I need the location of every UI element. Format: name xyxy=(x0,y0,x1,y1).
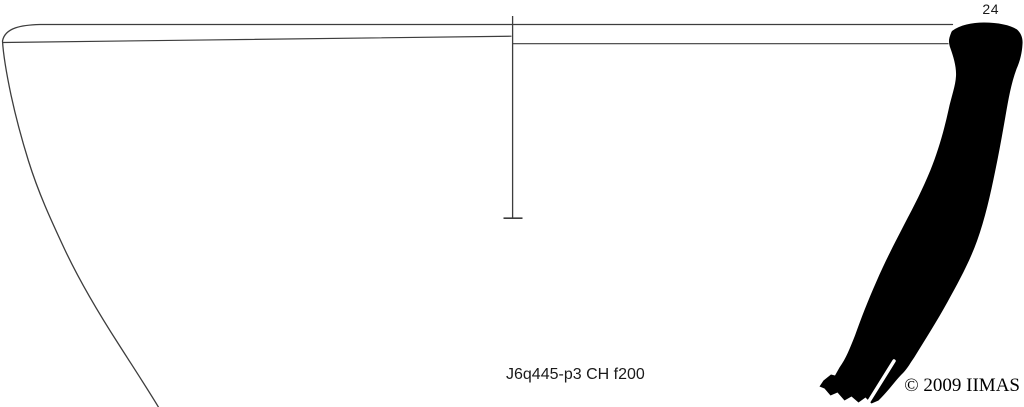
sherd-caption: J6q445-p3 CH f200 xyxy=(506,365,645,385)
interior-rim-line-left xyxy=(3,36,512,42)
plate-number: 24 xyxy=(982,0,999,18)
copyright-notice: © 2009 IIMAS xyxy=(904,374,1020,398)
pottery-plate-figure: 24 J6q445-p3 CH f200 © 2009 IIMAS xyxy=(0,0,1024,407)
vessel-outer-contour xyxy=(3,25,953,407)
sherd-profile-drawing xyxy=(0,0,1024,407)
section-fill xyxy=(820,23,1023,404)
